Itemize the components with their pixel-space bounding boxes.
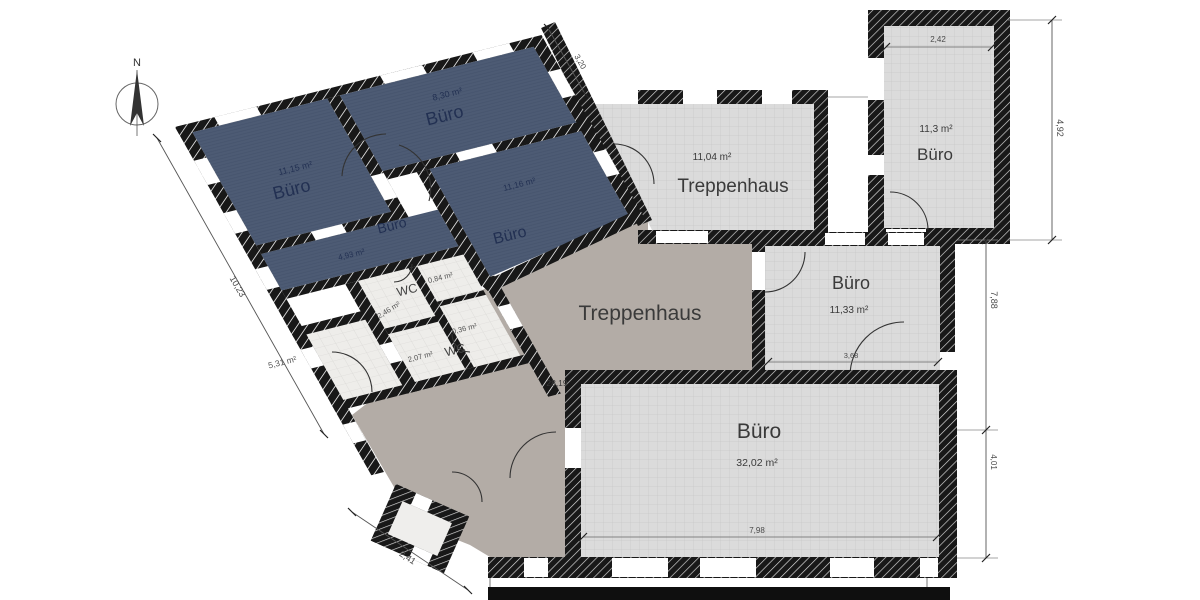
dim-10-23: 10,23 xyxy=(228,274,248,299)
floor-plan-drawing: N 11,15 m² Büro 8,30 m² Büro Büro 4,93 m… xyxy=(0,0,1200,600)
treppenhaus-main-area: 28,19 xyxy=(546,378,568,388)
buero-11-33-area: 11,33 m² xyxy=(830,305,869,316)
window-gap xyxy=(700,558,756,577)
window-gap xyxy=(868,58,884,100)
treppenhaus-main-label: Treppenhaus xyxy=(579,302,702,325)
buero-11-3-label: Büro xyxy=(917,145,953,164)
floor-plan-page: N 11,15 m² Büro 8,30 m² Büro Büro 4,93 m… xyxy=(0,0,1200,600)
buero-32-02-label: Büro xyxy=(737,420,781,443)
window-gap xyxy=(524,558,548,577)
window-gap xyxy=(920,558,938,577)
window-gap xyxy=(762,90,792,104)
room-5-31-area: 5,31 m² xyxy=(267,354,298,371)
terrace-outline xyxy=(488,578,950,600)
dim-4-92: 4,92 xyxy=(1055,119,1065,137)
window-gap xyxy=(830,558,874,577)
treppenhaus-upper-label: Treppenhaus xyxy=(677,176,788,197)
door-gap xyxy=(656,231,708,243)
buero-11-33-label: Büro xyxy=(832,273,870,293)
door-gap xyxy=(752,252,765,290)
dim-4-01: 4,01 xyxy=(989,454,998,470)
north-arrow-icon xyxy=(116,70,158,136)
dim-7-88: 7,88 xyxy=(989,291,999,309)
window-gap xyxy=(888,233,924,245)
window-gap xyxy=(683,90,717,104)
buero-32-02-area: 32,02 m² xyxy=(736,457,778,469)
buero-11-33-width-dim: 3,68 xyxy=(844,351,859,360)
treppenhaus-upper-area: 11,04 m² xyxy=(693,152,732,163)
window-gap xyxy=(612,558,668,577)
window-gap xyxy=(868,155,884,175)
window-gap xyxy=(565,428,581,468)
buero-11-3-area: 11,3 m² xyxy=(919,124,953,135)
buero-11-3-width-dim: 2,42 xyxy=(930,35,946,44)
buero-32-02-width-dim: 7,98 xyxy=(749,526,765,535)
bottom-cutoff-wall xyxy=(488,587,950,600)
window-gap xyxy=(825,233,865,245)
north-label: N xyxy=(133,57,141,69)
